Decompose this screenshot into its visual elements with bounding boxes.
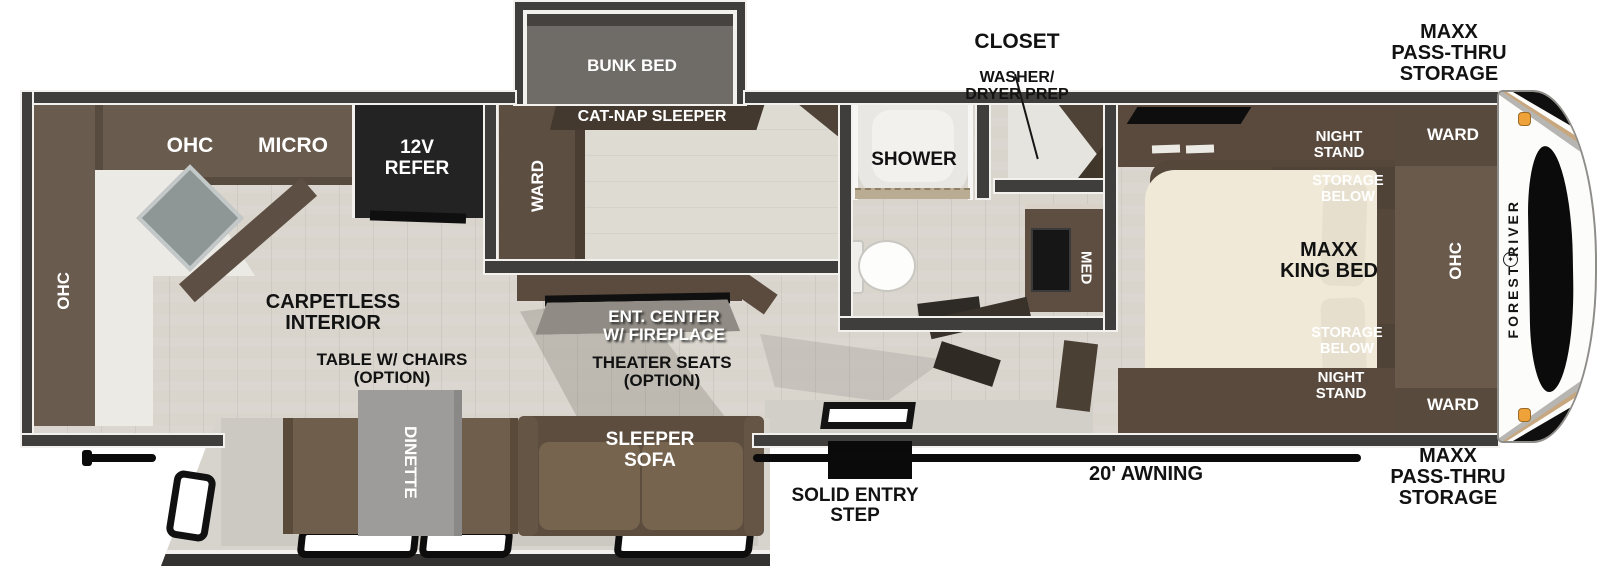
wall-top-right (743, 90, 1500, 105)
wall-bedroom (1103, 103, 1118, 332)
carpetless-interior-label: CARPETLESS INTERIOR (266, 292, 400, 334)
wall-bath-left (838, 103, 853, 332)
entry-landing (765, 400, 1093, 433)
dinette-bench-left (283, 418, 359, 534)
ent-center-label: ENT. CENTER W/ FIREPLACE (603, 308, 725, 345)
shower-pan-inner (872, 110, 954, 182)
awning-line-right (753, 454, 1361, 462)
cap-windshield (1527, 146, 1575, 393)
closet-callout-subtitle: WASHER/ DRYER PREP (965, 70, 1068, 104)
brand-label-box: FOREST RIVER (1501, 134, 1525, 404)
awning-label: 20' AWNING (1089, 464, 1203, 485)
med-label-box: MED (1074, 232, 1098, 304)
toilet-bowl (858, 240, 916, 292)
bunk-slide-out (513, 0, 747, 106)
front-cap: FOREST RIVER ✦ (1497, 90, 1597, 443)
night-stand-top-label: NIGHT STAND (1314, 129, 1365, 161)
marker-light-bottom (1518, 408, 1531, 422)
wall-closet-bottom (993, 178, 1118, 194)
dinette-bench-right (462, 418, 518, 534)
refer-label: 12V REFER (385, 138, 449, 179)
dinette-label: DINETTE (400, 426, 420, 499)
towel-bar (855, 188, 970, 199)
awning-line-left (86, 454, 156, 462)
sleeper-sofa-label: SLEEPER SOFA (606, 430, 695, 471)
ward-top-label: WARD (1427, 126, 1479, 144)
entry-step-label: SOLID ENTRY STEP (791, 486, 918, 526)
shower-label: SHOWER (871, 150, 957, 170)
sofa-arm-left (518, 416, 538, 536)
dresser-slat (1186, 145, 1214, 154)
ohc-top-label: OHC (167, 135, 214, 158)
bedroom-ohc-label: OHC (1446, 242, 1466, 280)
maxx-storage-bottom-label: MAXX PASS-THRU STORAGE (1390, 446, 1505, 510)
wall-bottom-left (20, 433, 225, 448)
ohc-rear-label-box: OHC (50, 255, 78, 327)
brand-label: FOREST RIVER (1505, 199, 1521, 338)
theater-seats-option-label: THEATER SEATS (OPTION) (592, 354, 731, 390)
maxx-storage-top-label: MAXX PASS-THRU STORAGE (1391, 22, 1506, 86)
table-chairs-option-label: TABLE W/ CHAIRS (OPTION) (317, 351, 468, 387)
floorplan-diagram: OHC MICRO 12V REFER OHC WARD CAT-NAP SLE… (0, 0, 1600, 582)
med-label: MED (1078, 251, 1095, 284)
bedroom-tv (1127, 107, 1252, 124)
ward-bottom-label: WARD (1427, 396, 1479, 414)
awning-bracket (82, 450, 92, 466)
ohc-rear-label: OHC (54, 272, 74, 310)
wall-bunk-left (483, 103, 498, 275)
closet-callout: CLOSET WASHER/ DRYER PREP (965, 14, 1068, 121)
entry-mat (820, 402, 916, 429)
wall-top-left (20, 90, 517, 105)
dresser-slat (1152, 145, 1180, 154)
micro-label: MICRO (258, 135, 328, 158)
bunk-head-strip (527, 14, 733, 26)
storage-below-top-label: STORAGE BELOW (1312, 174, 1383, 205)
wall-bath-bottom (838, 316, 1118, 332)
bunk-bed-label: BUNK BED (587, 57, 677, 75)
marker-light-top (1518, 112, 1531, 126)
bunk-ward-label: WARD (528, 160, 548, 212)
bedroom-ohc-label-box: OHC (1442, 226, 1470, 296)
cat-nap-sleeper-label: CAT-NAP SLEEPER (578, 108, 727, 125)
night-stand-bottom-label: NIGHT STAND (1316, 370, 1367, 402)
storage-below-bottom-label: STORAGE BELOW (1311, 326, 1382, 357)
dinette-label-box: DINETTE (396, 414, 424, 510)
vanity-sink (1031, 228, 1071, 292)
bunk-ward-label-box: WARD (524, 144, 552, 228)
king-bed-label: MAXX KING BED (1280, 240, 1378, 282)
shower-glass-left (853, 104, 858, 200)
closet-callout-title: CLOSET (965, 31, 1068, 53)
wall-bunk-bottom (483, 259, 853, 275)
wall-rear (20, 90, 34, 448)
